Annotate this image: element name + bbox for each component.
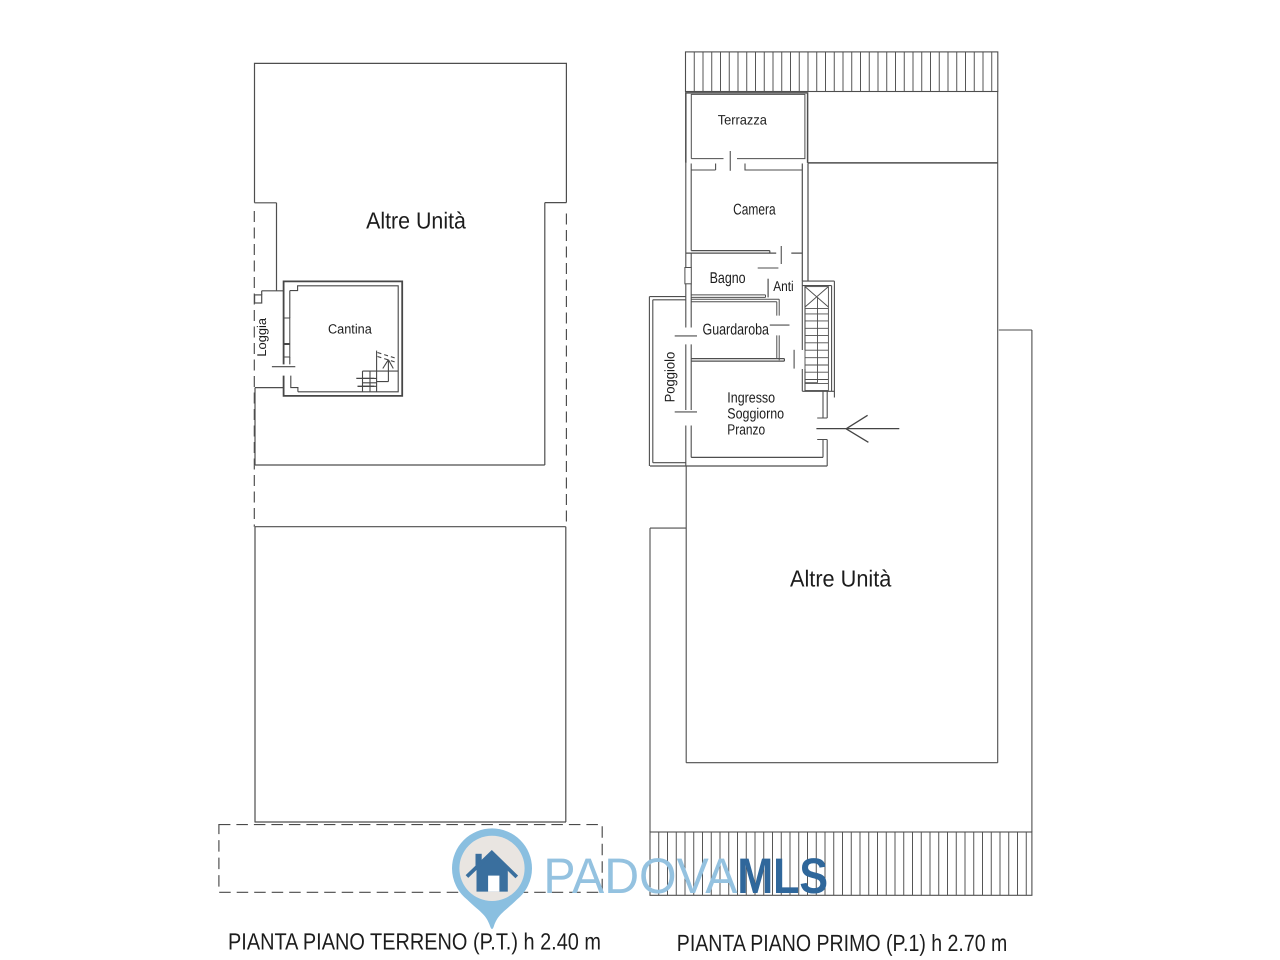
svg-text:Altre Unità: Altre Unità xyxy=(366,207,466,233)
svg-text:Loggia: Loggia xyxy=(255,317,269,357)
svg-text:Soggiorno: Soggiorno xyxy=(727,407,784,423)
svg-text:Guardaroba: Guardaroba xyxy=(703,321,770,338)
svg-text:Terrazza: Terrazza xyxy=(718,112,768,127)
svg-text:Pranzo: Pranzo xyxy=(727,423,765,439)
svg-text:Poggiolo: Poggiolo xyxy=(662,352,678,403)
svg-text:MLS: MLS xyxy=(737,848,828,904)
svg-text:Camera: Camera xyxy=(733,201,776,218)
svg-text:Anti: Anti xyxy=(773,279,794,295)
svg-text:Ingresso: Ingresso xyxy=(727,391,775,407)
svg-text:PIANTA PIANO PRIMO (P.1) h 2.7: PIANTA PIANO PRIMO (P.1) h 2.70 m xyxy=(677,930,1008,956)
svg-text:Bagno: Bagno xyxy=(710,270,746,287)
svg-text:PADOVA: PADOVA xyxy=(543,848,738,904)
svg-text:Altre Unità: Altre Unità xyxy=(790,565,891,591)
svg-text:PIANTA PIANO TERRENO (P.T.) h: PIANTA PIANO TERRENO (P.T.) h 2.40 m xyxy=(228,928,601,954)
svg-text:Cantina: Cantina xyxy=(328,321,372,336)
